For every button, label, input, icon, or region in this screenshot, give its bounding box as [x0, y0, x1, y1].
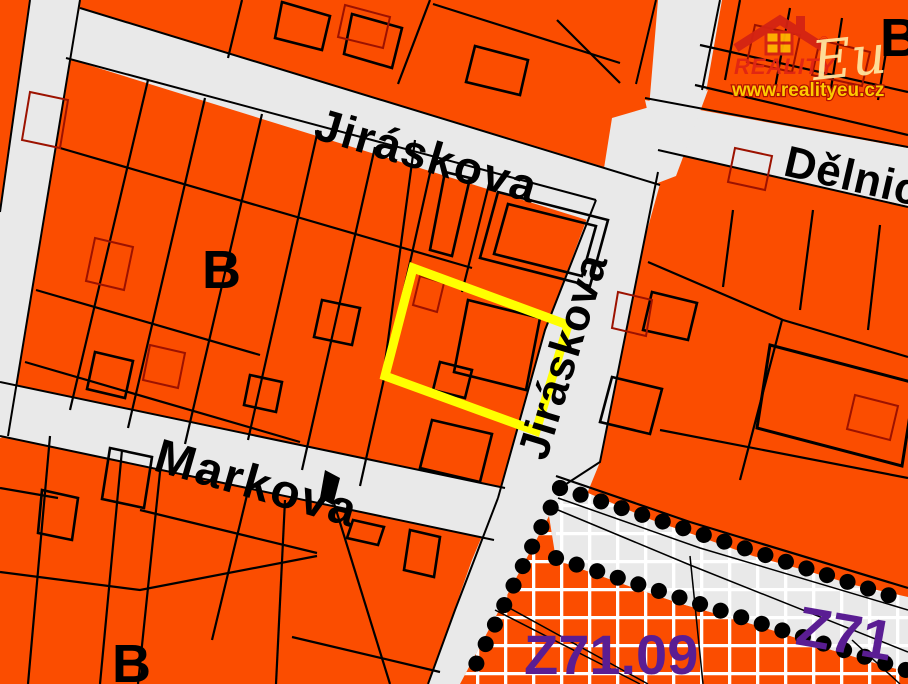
label-zone-b-southwest: B	[112, 634, 151, 684]
label-zone-z71-09: Z71.09	[524, 623, 698, 684]
map-canvas: Jiráskova Jiráskova Markova Dělnická B B…	[0, 0, 908, 684]
label-zone-b-northwest: B	[202, 240, 241, 300]
watermark-url: www.realityeu.cz	[731, 80, 884, 101]
zoning-map: Jiráskova Jiráskova Markova Dělnická B B…	[0, 0, 908, 684]
